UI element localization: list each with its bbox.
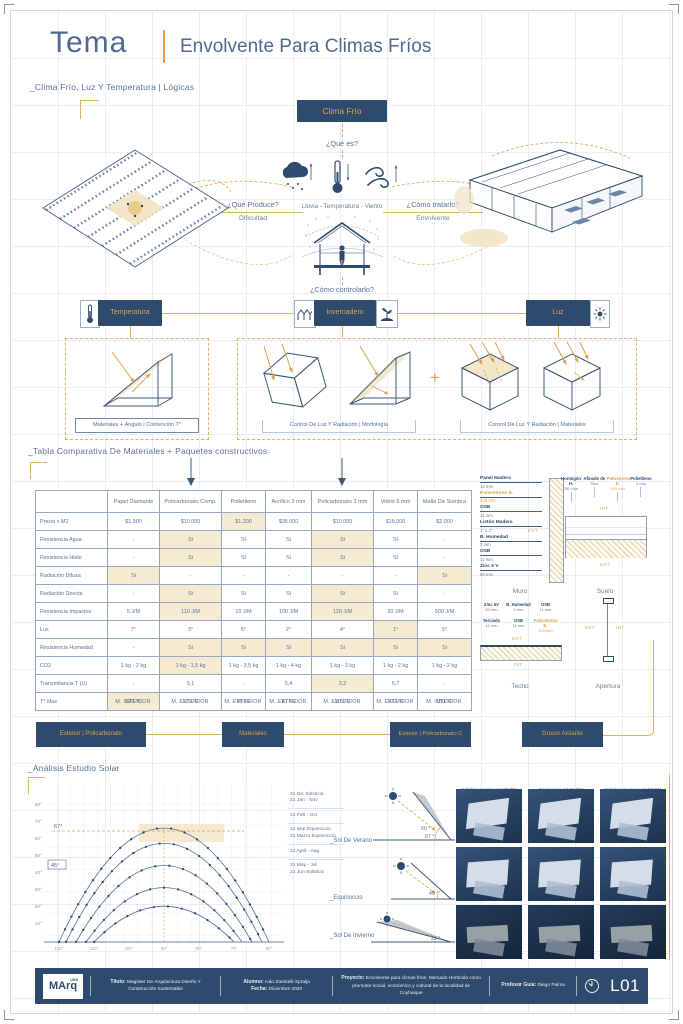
- title-block: MArq UDD Título: Magíster De Arquitectur…: [35, 968, 648, 1004]
- table-cell: Si: [108, 567, 160, 585]
- sprout-icon: [380, 306, 394, 322]
- table-cell: Si: [312, 531, 374, 549]
- page-subtitle: Envolvente Para Climas Fríos: [180, 36, 431, 58]
- table-cell: 20 J/M: [374, 603, 418, 621]
- proyecto-label: Proyecto:: [341, 975, 364, 981]
- model-photo: [456, 847, 522, 901]
- table-cell: Si: [266, 639, 312, 657]
- y-axis-tick: 10°: [35, 922, 42, 927]
- sprout-iconbox: [376, 300, 398, 328]
- table-cell: -: [108, 549, 160, 567]
- model-photo: [600, 789, 666, 843]
- question-controlarlo: ¿Cómo controlarlo?: [292, 285, 392, 294]
- titulo-label: Título:: [110, 979, 125, 985]
- table-row: CO21 kg - 2 kg1 kg - 1,5 kg1 kg - 3,5 kg…: [36, 657, 472, 675]
- column-header: Malla De Sombra: [418, 491, 472, 513]
- material-cube-diagram-2: [534, 342, 610, 414]
- table-cell: 110 J/M: [160, 603, 222, 621]
- column-header: Vidrio 6 mm: [374, 491, 418, 513]
- profesor-block: Profesor Guía: Diego Palma: [497, 982, 569, 990]
- proyecto-block: Proyecto: Envolvente para climas fríos. …: [340, 975, 482, 997]
- table-cell: Si: [160, 549, 222, 567]
- connector-line: [284, 734, 390, 735]
- table-cell: Si: [266, 531, 312, 549]
- int-label: INT: [600, 506, 608, 511]
- table-cell: 1 kg - 3,5 kg: [222, 657, 266, 675]
- annotation-67: 67°: [54, 824, 62, 830]
- model-photo: [528, 789, 594, 843]
- table-cell: 1 kg - 2 kg: [374, 657, 418, 675]
- connector-line: [342, 150, 343, 158]
- greenhouse-iconbox: [294, 300, 316, 328]
- footer-divider: [90, 976, 91, 996]
- model-photo: [528, 905, 594, 959]
- column-header: Policarbonato 3 mm: [312, 491, 374, 513]
- row-label: Resistencia Impactos: [36, 603, 108, 621]
- sun-path-chart: 67° 45°: [44, 782, 284, 946]
- section-bracket: [80, 100, 99, 119]
- roof-layer: Zinc 5V50 mm: [478, 602, 505, 612]
- table-cell: $15.000: [374, 513, 418, 531]
- annotation-45: 45°: [51, 863, 59, 869]
- table-cell: -: [418, 585, 472, 603]
- table-cell: Si: [312, 585, 374, 603]
- strategy-label-3: Control De Luz Y Radiación | Materiales: [460, 420, 614, 433]
- table-cell: 1°: [374, 621, 418, 639]
- sun-chart-y-axis: 80°70°60°50°40°30°20°10°: [26, 782, 42, 946]
- column-header: Acrílico 3 mm: [266, 491, 312, 513]
- titulo-block: Título: Magíster De Arquitectura Diseño …: [98, 979, 213, 994]
- floor-layer: Afinado dePiso: [583, 476, 605, 502]
- table-cell: $35.000: [266, 513, 312, 531]
- table-header-row: Papel DiamantePolicarbonato Comp.Polieti…: [36, 491, 472, 513]
- row-label: CO2: [36, 657, 108, 675]
- table-cell: 1 kg - 3 kg: [312, 657, 374, 675]
- table-cell: Si: [374, 585, 418, 603]
- legend-item: 21 May - Jul21 Jun Solsticio: [288, 859, 344, 880]
- table-cell: Si: [160, 639, 222, 657]
- table-cell: -: [222, 567, 266, 585]
- column-header: [36, 491, 108, 513]
- roof-layer: OSB11 mm: [505, 618, 532, 628]
- wall-layer: OSB11 mm: [480, 505, 542, 518]
- legend-item: 21 April - Aug: [288, 844, 344, 859]
- membrane-labels-row: M. INTERIORM. EXTERIORM. EXTERIORM. EXTE…: [35, 699, 471, 709]
- corner-mark: [4, 4, 14, 14]
- row-label: Radiación Directa: [36, 585, 108, 603]
- thermometer-icon: [333, 161, 349, 193]
- presentation-board: Tema Envolvente Para Climas Fríos _Clima…: [0, 0, 683, 1024]
- control-invernadero: Invernadero: [314, 300, 376, 326]
- model-photo: [456, 789, 522, 843]
- x-axis-tick: 120°: [49, 946, 69, 951]
- button-exterior-policarbonato-c: Exterior | Policarbonato C: [390, 722, 471, 747]
- x-axis-tick: 100°: [119, 946, 139, 951]
- wall-layer: Zinc 5 V50 mm: [480, 564, 542, 577]
- y-axis-tick: 80°: [35, 803, 42, 808]
- connector-line: [146, 734, 222, 735]
- alumno-block: Alumno: Iván Zambelli Spralja Fecha: Dic…: [228, 979, 325, 994]
- suelo-layer-list: Hormigón H.250 mmAfinado dePisoPoliestir…: [560, 476, 652, 502]
- row-label: Resistencia Hielo: [36, 549, 108, 567]
- logo-text: MArq: [49, 980, 77, 992]
- x-axis-tick: 70°: [224, 946, 244, 951]
- table-cell: 7°: [108, 621, 160, 639]
- roof-layer: OSB11 mm: [532, 602, 559, 612]
- button-materiales: Materiales: [222, 722, 284, 747]
- title-divider: [163, 30, 165, 63]
- table-cell: 3°: [160, 621, 222, 639]
- table-cell: 1 kg - 1,5 kg: [160, 657, 222, 675]
- slab-insulation: [566, 539, 646, 558]
- roof-layer: Poliestireno E.100 mm: [532, 618, 559, 633]
- material-cube-diagram-1: [452, 342, 528, 414]
- wall-layer: Poliestireno E.100 mm: [480, 491, 542, 504]
- table-cell: Si: [418, 639, 472, 657]
- table-cell: Si: [222, 531, 266, 549]
- profesor-label: Profesor Guía:: [501, 982, 536, 988]
- table-cell: $10.000: [160, 513, 222, 531]
- table-cell: Si: [418, 567, 472, 585]
- table-cell: Si: [312, 639, 374, 657]
- floor-layer: Poliestireno E.100 mm: [607, 476, 629, 502]
- table-cell: -: [108, 675, 160, 693]
- sheet-code: L01: [610, 976, 640, 996]
- table-cell: Si: [160, 531, 222, 549]
- table-cell: -: [222, 675, 266, 693]
- button-grosor-aislante: Grosor Aislante: [522, 722, 603, 747]
- section-label-tabla: _Tabla Comparativa De Materiales + Paque…: [28, 446, 267, 456]
- wall-layer: OSB11 mm: [480, 549, 542, 562]
- prism-conten-diagram: [92, 344, 180, 414]
- greenhouse-field-sketch: [38, 146, 233, 271]
- y-axis-tick: 20°: [35, 905, 42, 910]
- table-cell: Si: [374, 531, 418, 549]
- table-cell: 10 J/M: [222, 603, 266, 621]
- detail-title-suelo: Suelo: [580, 588, 630, 595]
- table-row: Transmitancia T (U)-5,1-5,43,25,7-: [36, 675, 472, 693]
- table-cell: Si: [160, 585, 222, 603]
- temperatura-iconbox: [80, 300, 100, 328]
- x-axis-tick: 60°: [259, 946, 279, 951]
- techo-layer-row-2: Terciado11 mmOSB11 mmPoliestireno E.100 …: [478, 618, 562, 636]
- table-cell: $10.000: [312, 513, 374, 531]
- table-cell: 2°: [266, 621, 312, 639]
- proyecto-value: Envolvente para climas fríos. Mercado Ho…: [352, 976, 481, 996]
- alumno-label: Alumno:: [243, 979, 263, 985]
- y-axis-tick: 30°: [35, 888, 42, 893]
- angle-value: 67 °: [425, 834, 434, 840]
- row-label: Resistencia Humedad: [36, 639, 108, 657]
- arrow-down-icon: [185, 458, 197, 486]
- fecha-value: Diciembre 2020: [269, 987, 303, 992]
- row-label: Transmitancia T (U): [36, 675, 108, 693]
- question-que-es: ¿Qué es?: [292, 139, 392, 148]
- connector-line: [558, 326, 559, 338]
- detail-title-muro: Muro: [495, 588, 545, 595]
- footer-divider: [332, 976, 333, 996]
- legend-item: 21 Dic Solsticio21 Jan - Nov: [288, 788, 344, 808]
- table-cell: -: [374, 567, 418, 585]
- table-row: Resistencia Humedad-SiSiSiSiSiSi: [36, 639, 472, 657]
- table-cell: 120 J/M: [312, 603, 374, 621]
- table-cell: $2.000: [418, 513, 472, 531]
- sun-icon: [593, 307, 607, 321]
- market-building-sketch: [452, 136, 652, 258]
- table-row: Resistencia Hielo-SiSiSiSiSi-: [36, 549, 472, 567]
- table-cell: -: [160, 567, 222, 585]
- column-header: Polietileno: [222, 491, 266, 513]
- titulo-value: Magíster De Arquitectura Diseño Y Constr…: [127, 980, 201, 993]
- table-cell: 6°: [222, 621, 266, 639]
- table-cell: Si: [312, 549, 374, 567]
- thermometer-small-icon: [85, 304, 95, 324]
- table-row: Lux7°3°6°2°4°1°5°: [36, 621, 472, 639]
- model-photo: [600, 847, 666, 901]
- footer-divider: [576, 976, 577, 996]
- corner-mark: [669, 4, 679, 14]
- y-axis-tick: 70°: [35, 820, 42, 825]
- y-axis-tick: 50°: [35, 854, 42, 859]
- x-axis-tick: 80°: [189, 946, 209, 951]
- x-axis-tick: 90°: [154, 946, 174, 951]
- table-cell: 100 J/M: [266, 603, 312, 621]
- table-cell: -: [418, 675, 472, 693]
- model-photo: [600, 905, 666, 959]
- rain-cloud-icon: [283, 162, 311, 190]
- detail-title-apertura: Apertura: [583, 683, 633, 690]
- row-label: Lux: [36, 621, 108, 639]
- corner-mark: [4, 1010, 14, 1020]
- floor-layer: Hormigón H.250 mm: [560, 476, 582, 502]
- table-cell: 5,4: [266, 675, 312, 693]
- sun-chart-legend: 21 Dic Solsticio21 Jan - Nov21 Feb - Oct…: [288, 788, 344, 880]
- control-luz: Luz: [526, 300, 590, 326]
- int-label: INT: [616, 625, 624, 630]
- table-cell: -: [108, 585, 160, 603]
- clima-frio-node: Clima Frío: [297, 100, 387, 122]
- triangle-label-equinoccio: _Equinoccio: [330, 895, 385, 901]
- climate-icons: [278, 158, 406, 200]
- column-header: Papel Diamante: [108, 491, 160, 513]
- y-axis-tick: 60°: [35, 837, 42, 842]
- suelo-section-drawing: [565, 516, 647, 558]
- slab-top: [566, 517, 646, 539]
- table-cell: -: [108, 531, 160, 549]
- apertura-frame-top: [603, 598, 614, 604]
- section-edge-line: [669, 775, 670, 960]
- membrane-label: M. INTERIOR: [101, 699, 165, 705]
- table-cell: Si: [374, 639, 418, 657]
- table-cell: 1 kg - 4 kg: [266, 657, 312, 675]
- table-row: Radiación Directa-SiSiSiSiSi-: [36, 585, 472, 603]
- table-row: Radiación DifusaSi-----Si: [36, 567, 472, 585]
- section-label-solar: _Análisis Estudio Solar: [28, 763, 120, 773]
- table-cell: -: [418, 549, 472, 567]
- connector-line: [342, 326, 343, 338]
- apertura-frame-bottom: [603, 656, 614, 662]
- angle-value: 60 °: [421, 826, 430, 832]
- table-cell: 1 kg - 2 kg: [418, 657, 472, 675]
- table-cell: -: [266, 567, 312, 585]
- connector-line: [342, 277, 343, 285]
- strategy-label-1: Materiales + Ángulo | Contención T°: [75, 418, 199, 433]
- strategy-label-2: Control De Luz Y Radiación | Morfología: [262, 420, 416, 433]
- table-cell: $1.200: [222, 513, 266, 531]
- profesor-value: Diego Palma: [537, 983, 564, 988]
- model-photo: [456, 905, 522, 959]
- highlight-band: [139, 824, 224, 842]
- ext-label: EXT: [528, 528, 538, 533]
- tilted-cube-diagram: [256, 342, 334, 414]
- table-cell: -: [418, 531, 472, 549]
- roof-layer: B. Humedad2 mm: [505, 602, 532, 612]
- section-label-logicas: _Clima Frío, Luz Y Temperatura | Lógicas: [30, 82, 194, 92]
- x-axis-tick: 110°: [84, 946, 104, 951]
- materials-table: Papel DiamantePolicarbonato Comp.Polieti…: [35, 490, 472, 711]
- floor-layer: Polietileno2 mm: [630, 476, 652, 502]
- detail-title-techo: Techo: [495, 683, 545, 690]
- legend-item: 21 Feb - Oct: [288, 808, 344, 823]
- table-row: Resistencia Impactos5 J/M110 J/M10 J/M10…: [36, 603, 472, 621]
- table-cell: 1 kg - 2 kg: [108, 657, 160, 675]
- page-title: Tema: [50, 26, 127, 60]
- techo-section-drawing: [480, 645, 562, 661]
- table-cell: Si: [222, 585, 266, 603]
- table-cell: 5,1: [160, 675, 222, 693]
- ext-label: EXT: [585, 625, 595, 630]
- model-photo: [528, 847, 594, 901]
- greenhouse-icon: [297, 307, 313, 321]
- angle-value: 21 °: [431, 936, 440, 942]
- table-cell: Si: [266, 549, 312, 567]
- arrow-down-icon: [336, 458, 348, 486]
- footer-divider: [220, 976, 221, 996]
- wedge-cube-diagram: [338, 342, 416, 414]
- wind-icon: [366, 166, 396, 187]
- fecha-label: Fecha:: [251, 986, 267, 992]
- winter-sun-angle-diagram: 21 °: [365, 910, 460, 946]
- connector-line: [162, 313, 294, 314]
- button-exterior-policarbonato: Exterior | Policarbonato: [36, 722, 146, 747]
- marq-logo: MArq UDD: [43, 974, 83, 999]
- table-cell: -: [108, 639, 160, 657]
- table-cell: Si: [374, 549, 418, 567]
- photo-grid: [456, 789, 672, 959]
- angle-value: 45 °: [429, 891, 438, 897]
- ext-label: EXT: [600, 562, 610, 567]
- table-cell: Si: [222, 639, 266, 657]
- house-sketch: [300, 213, 385, 279]
- clock-icon: [584, 978, 600, 994]
- section-bracket: [30, 462, 47, 479]
- table-cell: 3,2: [312, 675, 374, 693]
- roof-layer: Terciado11 mm: [478, 618, 505, 628]
- wall-layer: Panel Madera10 mm: [480, 476, 542, 489]
- row-label: Precio x M2: [36, 513, 108, 531]
- table-cell: Si: [266, 585, 312, 603]
- table-cell: $1.500: [108, 513, 160, 531]
- table-cell: 4°: [312, 621, 374, 639]
- footer-divider: [489, 976, 490, 996]
- corner-mark: [669, 1010, 679, 1020]
- membrane-label: M. INTERIOR: [412, 699, 476, 705]
- table-cell: 5,7: [374, 675, 418, 693]
- connector-line: [130, 326, 131, 338]
- alumno-value: Iván Zambelli Spralja: [265, 980, 310, 985]
- equinox-sun-angle-diagram: 45 °: [385, 855, 460, 903]
- summer-sun-angle-diagram: 60 ° 67 °: [365, 786, 460, 844]
- table-row: Precio x M2$1.500$10.000$1.200$35.000$10…: [36, 513, 472, 531]
- table-cell: 5°: [418, 621, 472, 639]
- ext-label: EXT: [512, 636, 522, 641]
- sun-iconbox: [590, 300, 610, 328]
- logo-sup: UDD: [70, 978, 78, 982]
- table-cell: Si: [222, 549, 266, 567]
- table-row: Resistencia Agua-SiSiSiSiSi-: [36, 531, 472, 549]
- int-label: INT: [514, 662, 522, 667]
- table-cell: -: [312, 567, 374, 585]
- plus-sign: +: [430, 368, 440, 388]
- y-axis-tick: 40°: [35, 871, 42, 876]
- table-cell: 5 J/M: [108, 603, 160, 621]
- sun-chart-x-axis: 120°110°100°90°80°70°60°: [44, 946, 284, 954]
- row-label: Resistencia Agua: [36, 531, 108, 549]
- row-label: Radiación Difusa: [36, 567, 108, 585]
- control-temperatura: Temperatura: [98, 300, 162, 326]
- column-header: Policarbonato Comp.: [160, 491, 222, 513]
- connector-line: [396, 313, 526, 314]
- connector-line: [342, 124, 343, 137]
- wall-layer: B. Humedad2 mm: [480, 535, 542, 548]
- table-cell: 500 J/M: [418, 603, 472, 621]
- apertura-section-drawing: [607, 600, 608, 658]
